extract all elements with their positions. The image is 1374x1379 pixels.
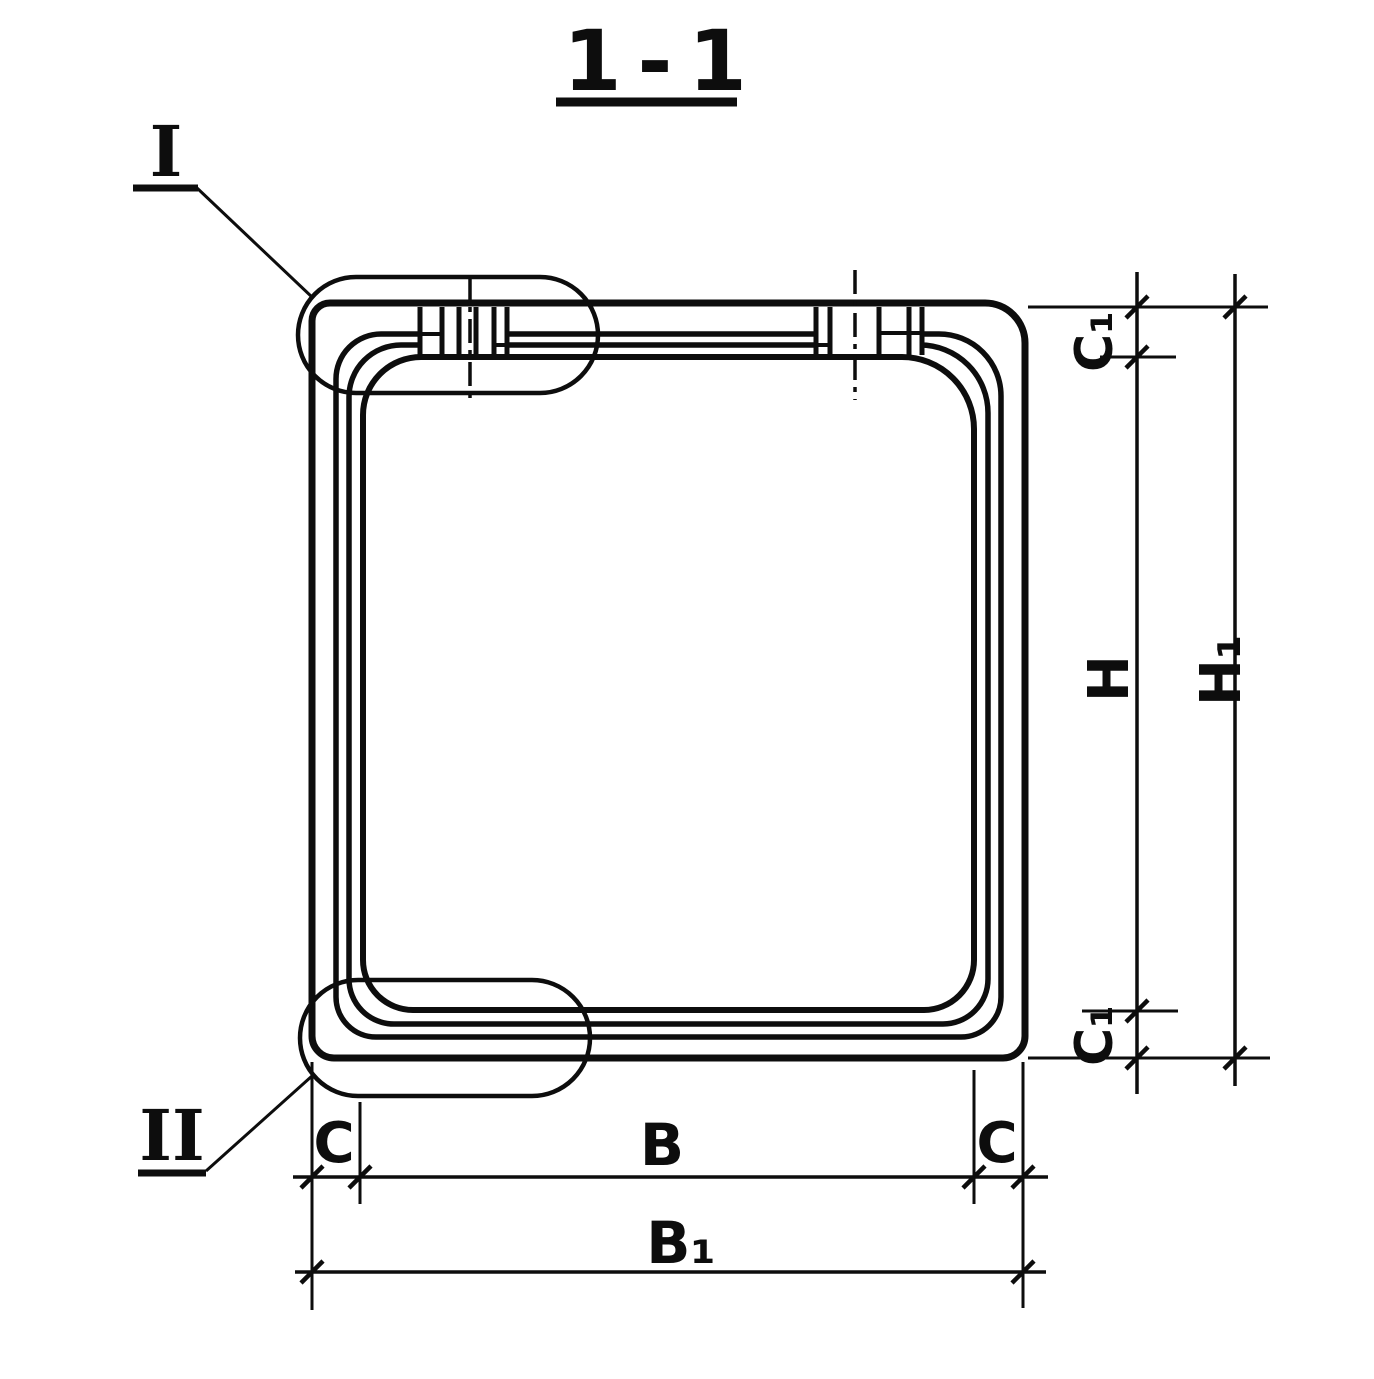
dim-label-b1: B₁ <box>646 1209 716 1277</box>
dim-label-c-right: C <box>976 1111 1017 1176</box>
drawing-canvas: 1-1 I II C₁ H H₁ C₁ C B C B₁ <box>0 0 1374 1379</box>
frame-inner-face <box>363 357 974 1010</box>
frame-mid-line-1 <box>336 334 1001 1037</box>
dim-label-b: B <box>640 1111 684 1179</box>
top-joints <box>420 270 922 405</box>
detail-balloons <box>298 277 598 1096</box>
detail-two-label: II <box>139 1094 205 1177</box>
dimension-ticks <box>301 296 1246 1283</box>
dim-label-c-left: C <box>313 1111 354 1176</box>
detail-one-label: I <box>150 110 183 193</box>
frame-mid-line-2 <box>349 345 988 1024</box>
dimension-lines <box>293 272 1270 1310</box>
frame-ring <box>312 303 1025 1058</box>
dim-label-h: H <box>1077 655 1142 702</box>
frame-outer-face <box>312 303 1025 1058</box>
view-title: 1-1 <box>563 12 763 110</box>
section-drawing: 1-1 I II C₁ H H₁ C₁ C B C B₁ <box>0 0 1374 1379</box>
callout-one-leader <box>197 188 313 298</box>
text-layer: 1-1 I II C₁ H H₁ C₁ C B C B₁ <box>139 12 1254 1277</box>
dim-label-c1-bottom: C₁ <box>1065 1005 1125 1066</box>
dim-label-h1: H₁ <box>1189 635 1254 706</box>
callout-leaders <box>133 188 313 1173</box>
dim-label-c1-top: C₁ <box>1065 311 1125 372</box>
callout-two-leader <box>206 1076 312 1171</box>
